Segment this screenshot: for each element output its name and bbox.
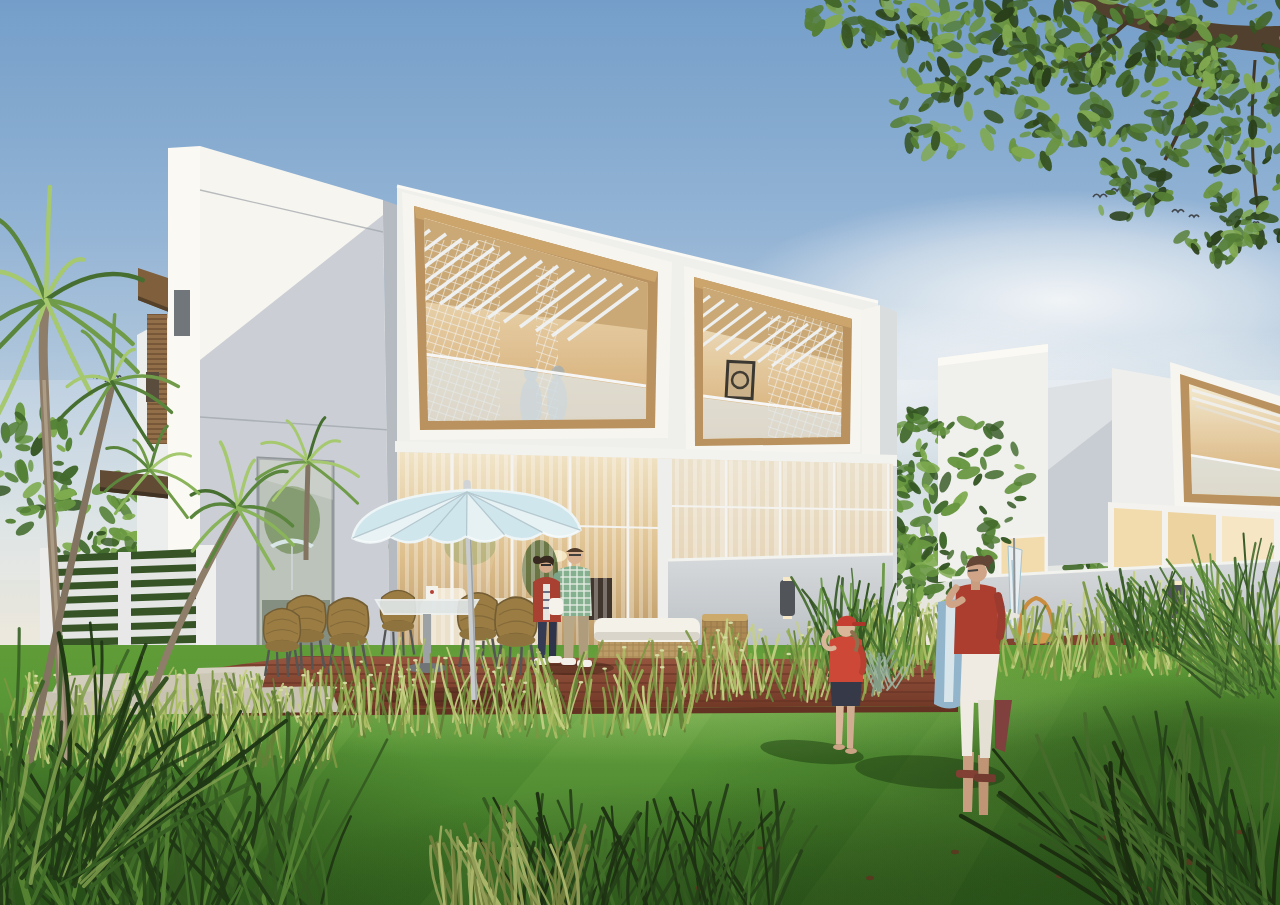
villa-garden-render (0, 0, 1280, 905)
dusk-tint (0, 0, 1280, 905)
scene-canvas (0, 0, 1280, 905)
